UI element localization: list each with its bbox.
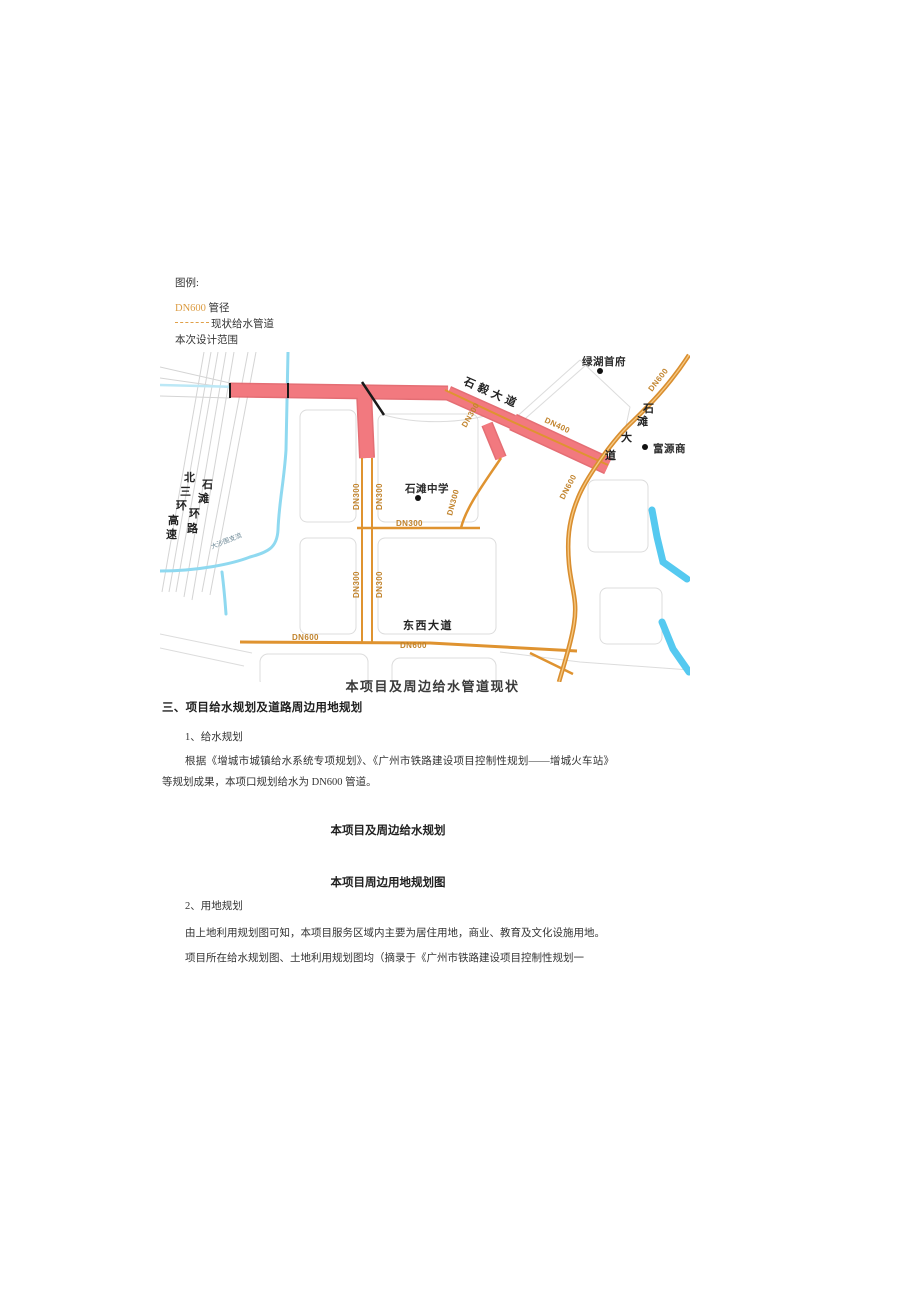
estate-dot <box>597 368 603 374</box>
label-shitan-school: 石滩中学 <box>404 482 449 495</box>
svg-text:高: 高 <box>168 513 179 527</box>
svg-text:DN300: DN300 <box>352 571 361 598</box>
label-river: 大沙围支流 <box>209 530 243 551</box>
svg-text:三: 三 <box>180 485 191 498</box>
svg-text:DN600: DN600 <box>558 473 579 501</box>
svg-text:滩: 滩 <box>198 491 209 505</box>
svg-text:大: 大 <box>621 430 632 444</box>
section-heading-3: 三、项目给水规划及道路周边用地规划 <box>162 699 363 715</box>
legend: 图例: DN600 管径 现状给水管道 本次设计范围 <box>175 276 274 349</box>
svg-text:DN300: DN300 <box>375 571 384 598</box>
map-caption: 本项目及周边给水管道现状 <box>160 676 705 695</box>
city-blocks <box>160 360 690 682</box>
map-canvas: 石滩中学 绿湖首府 富源商 东西大道 石毅大道 石 滩 大 道 北 三 环 高 … <box>160 352 690 682</box>
label-fuyuan-mall: 富源商 <box>653 442 686 455</box>
pipe-network-map: 石滩中学 绿湖首府 富源商 东西大道 石毅大道 石 滩 大 道 北 三 环 高 … <box>160 352 690 682</box>
legend-dn600-text: DN600 <box>175 303 206 314</box>
legend-item-diameter: DN600 管径 <box>175 301 274 317</box>
svg-text:环: 环 <box>176 499 187 512</box>
document-page: 图例: DN600 管径 现状给水管道 本次设计范围 <box>0 0 920 1301</box>
svg-text:石: 石 <box>201 478 213 491</box>
subheading-landuse-plan: 2、用地规划 <box>185 898 243 913</box>
paragraph-landuse-1: 由上地利用规划图可知，本项目服务区域内主要为居住用地，商业、教育及文化设施用地。 <box>185 925 605 940</box>
legend-diameter-text: 管径 <box>209 303 230 314</box>
svg-text:道: 道 <box>605 448 616 462</box>
subheading-water-plan: 1、给水规划 <box>185 729 243 744</box>
label-east-west-avenue: 东西大道 <box>403 618 453 632</box>
school-dot <box>415 495 421 501</box>
svg-text:路: 路 <box>187 521 199 535</box>
legend-item-scope: 本次设计范围 <box>175 333 274 349</box>
legend-title: 图例: <box>175 276 274 292</box>
svg-text:北: 北 <box>184 470 195 484</box>
paragraph-landuse-2: 项目所在给水规划图、土地利用规划图均（摘录于《广州市铁路建设项目控制性规划一 <box>185 950 584 965</box>
svg-text:DN600: DN600 <box>646 366 670 393</box>
dashed-line-sample <box>175 322 209 324</box>
svg-text:DN300: DN300 <box>396 519 423 528</box>
svg-text:石: 石 <box>642 402 654 415</box>
svg-text:速: 速 <box>166 527 177 541</box>
figure-caption-landuse-plan: 本项目周边用地规划图 <box>162 874 614 890</box>
legend-item-existing-pipe: 现状给水管道 <box>175 317 274 333</box>
figure-caption-water-plan: 本项目及周边给水规划 <box>162 822 614 838</box>
svg-text:滩: 滩 <box>637 414 648 428</box>
legend-existing-pipe-text: 现状给水管道 <box>211 319 274 330</box>
label-luhu-estate: 绿湖首府 <box>582 355 626 368</box>
svg-text:DN300: DN300 <box>375 483 384 510</box>
svg-text:环: 环 <box>189 507 200 520</box>
mall-dot <box>642 444 648 450</box>
svg-text:DN600: DN600 <box>292 633 319 642</box>
svg-text:DN600: DN600 <box>400 641 427 650</box>
paragraph-water-plan: 根据《增城市城镇给水系统专项规划》、《广州市铁路建设项目控制性规划——增城火车站… <box>162 751 614 793</box>
svg-text:DN300: DN300 <box>352 483 361 510</box>
